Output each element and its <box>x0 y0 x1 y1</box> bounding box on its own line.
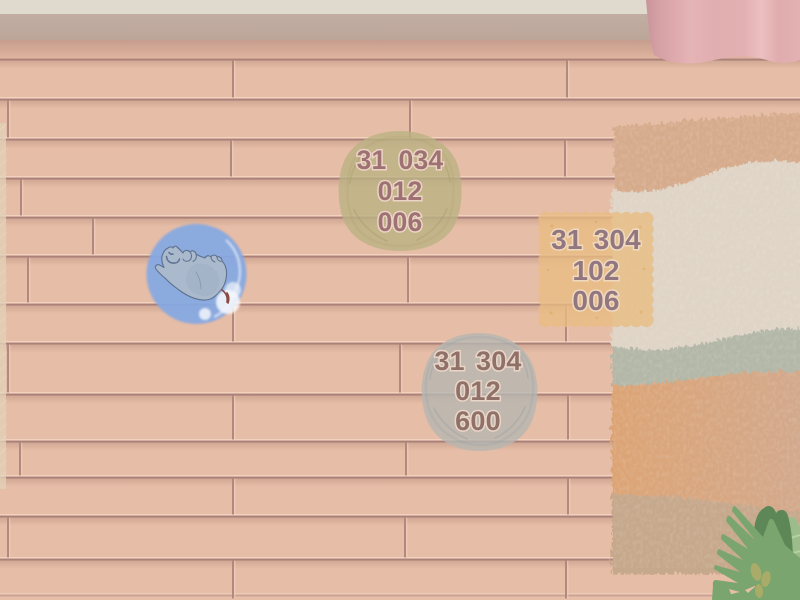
svg-text:012: 012 <box>378 176 423 206</box>
svg-text:31 304: 31 304 <box>551 224 641 255</box>
svg-text:600: 600 <box>455 406 501 436</box>
svg-text:006: 006 <box>378 207 423 237</box>
svg-text:31 034: 31 034 <box>357 145 444 175</box>
svg-text:006: 006 <box>572 285 619 316</box>
svg-text:102: 102 <box>572 255 619 286</box>
svg-text:012: 012 <box>455 376 501 406</box>
svg-text:31 304: 31 304 <box>434 346 521 376</box>
